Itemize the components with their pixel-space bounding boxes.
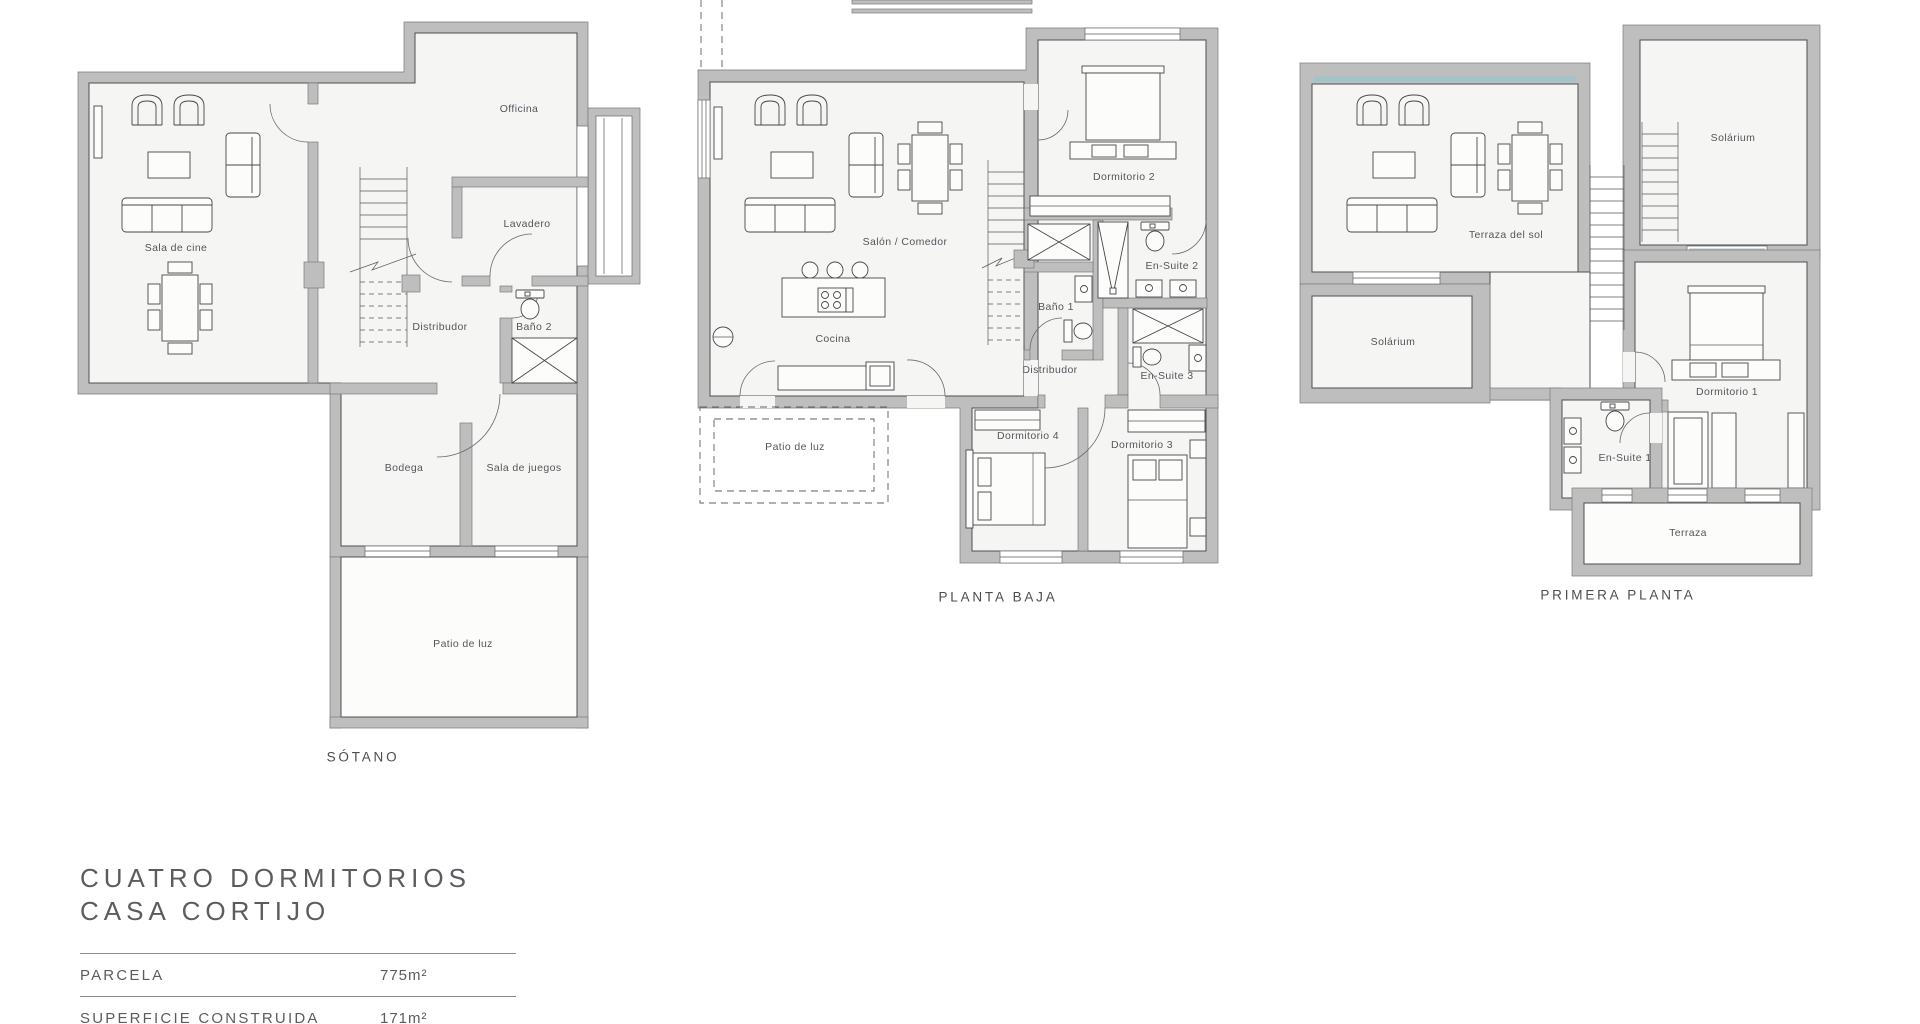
room-label-patio-baja: Patio de luz	[765, 441, 825, 453]
tv-icon	[714, 107, 722, 159]
room-label-lavadero: Lavadero	[504, 218, 551, 230]
plan-planta-baja	[698, 0, 1218, 563]
sink-icon	[1189, 345, 1206, 371]
room-label-bano-2: Baño 2	[516, 321, 552, 333]
toilet-icon	[1133, 347, 1161, 367]
shower-icon	[1028, 224, 1090, 260]
spec-value: 171m²	[380, 1010, 428, 1024]
sink-icon	[1136, 280, 1162, 297]
room-label-en-suite-2: En-Suite 2	[1145, 260, 1198, 272]
room-label-distribudor-sotano: Distribudor	[412, 321, 467, 333]
kitchen-counter-icon	[778, 362, 894, 390]
entrance-icon	[713, 327, 733, 347]
room-label-bodega: Bodega	[385, 462, 424, 474]
spec-label: PARCELA	[80, 967, 380, 984]
room-label-cocina: Cocina	[815, 333, 850, 345]
room-label-en-suite-1: En-Suite 1	[1598, 452, 1651, 464]
info-block: CUATRO DORMITORIOS CASA CORTIJO PARCELA …	[80, 862, 516, 1024]
room-label-officina: Officina	[500, 103, 539, 115]
shower-icon	[1098, 222, 1128, 298]
room-label-solarium-left: Solárium	[1371, 336, 1416, 348]
bed-icon	[966, 450, 1045, 528]
sink-icon	[1564, 447, 1581, 473]
spec-label: SUPERFICIE CONSTRUIDA	[80, 1010, 380, 1024]
floorplan-sheet: Sala de cine Officina Lavadero Distribud…	[0, 0, 1920, 1024]
tv-icon	[94, 106, 102, 158]
sink-icon	[1170, 280, 1196, 297]
room-label-dormitorio-3: Dormitorio 3	[1111, 439, 1173, 451]
spec-row-superficie: SUPERFICIE CONSTRUIDA 171m²	[80, 997, 516, 1024]
room-label-solarium-top: Solárium	[1711, 132, 1756, 144]
plan-title-primera-planta: PRIMERA PLANTA	[1540, 588, 1695, 603]
plan-primera-planta	[1300, 25, 1820, 576]
room-label-terraza: Terraza	[1669, 527, 1707, 539]
bed-icon	[1070, 66, 1176, 159]
room-label-sala-de-juegos: Sala de juegos	[486, 462, 561, 474]
room-label-salon-comedor: Salón / Comedor	[863, 236, 948, 248]
room-label-bano-1: Baño 1	[1038, 301, 1074, 313]
room-label-en-suite-3: En-Suite 3	[1140, 370, 1193, 382]
room-label-sala-de-cine: Sala de cine	[145, 242, 208, 254]
room-label-dormitorio-2: Dormitorio 2	[1093, 171, 1155, 183]
room-label-terraza-del-sol: Terraza del sol	[1469, 229, 1543, 241]
shower-icon	[1133, 309, 1203, 343]
spec-row-parcela: PARCELA 775m²	[80, 954, 516, 996]
sheet-title-line1: CUATRO DORMITORIOS	[80, 862, 516, 895]
staircase-primera	[1590, 165, 1624, 330]
room-label-distribudor-baja: Distribudor	[1022, 364, 1077, 376]
sheet-title-line2: CASA CORTIJO	[80, 895, 516, 928]
plan-sotano	[78, 22, 640, 728]
sink-icon	[1075, 276, 1092, 302]
room-label-dormitorio-4: Dormitorio 4	[997, 430, 1059, 442]
spec-value: 775m²	[380, 967, 428, 984]
plan-title-planta-baja: PLANTA BAJA	[938, 590, 1057, 605]
room-label-patio-sotano: Patio de luz	[433, 638, 493, 650]
hall-floor	[1490, 272, 1590, 400]
sink-icon	[1564, 418, 1581, 444]
shower-icon	[512, 338, 577, 383]
room-label-dormitorio-1: Dormitorio 1	[1696, 386, 1758, 398]
plan-title-sotano: SÓTANO	[327, 750, 400, 765]
